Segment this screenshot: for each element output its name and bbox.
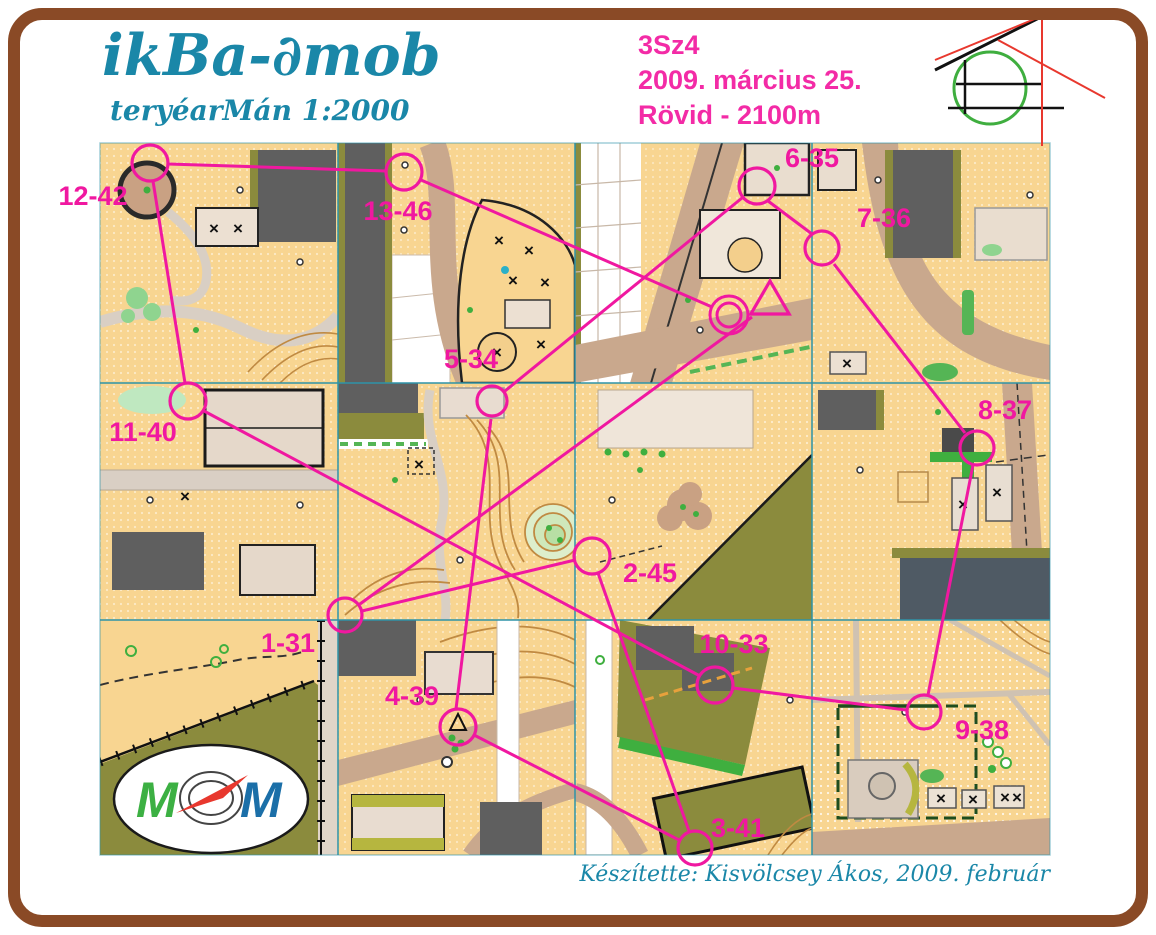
control-label-6-35: 6-35: [785, 143, 839, 173]
house-compass-emblem-icon: [935, 12, 1105, 146]
svg-text:×: ×: [992, 483, 1002, 502]
control-label-1-31: 1-31: [261, 628, 315, 658]
control-label-3-41: 3-41: [711, 813, 765, 843]
control-label-11-40: 11-40: [109, 417, 177, 447]
event-course-length: Rövid - 2100m: [638, 98, 862, 133]
control-label-7-36: 7-36: [857, 203, 911, 233]
svg-text:×: ×: [540, 273, 550, 292]
map-subtitle-scale: teryéarMán 1:2000: [110, 94, 409, 127]
control-label-2-45: 2-45: [623, 558, 677, 588]
svg-text:×: ×: [233, 219, 243, 238]
map-tile-r1c1: ××: [100, 143, 338, 383]
svg-text:×: ×: [209, 219, 219, 238]
control-label-9-38: 9-38: [955, 715, 1009, 745]
control-label-4-39: 4-39: [385, 681, 439, 711]
svg-text:×: ×: [1000, 788, 1010, 807]
event-info-block: 3Sz4 2009. március 25. Rövid - 2100m: [638, 28, 862, 133]
svg-text:×: ×: [1012, 788, 1022, 807]
svg-text:×: ×: [936, 789, 946, 808]
club-logo-letter-left: M: [136, 772, 179, 828]
club-logo-letter-right: M: [240, 772, 283, 828]
map-tile-r3c4: ×× ××: [812, 620, 1050, 855]
credit-line: Készítette: Kisvölcsey Ákos, 2009. febru…: [579, 862, 1050, 887]
control-label-5-34: 5-34: [444, 344, 498, 374]
svg-text:×: ×: [842, 354, 852, 373]
svg-text:×: ×: [524, 241, 534, 260]
svg-text:×: ×: [494, 231, 504, 250]
svg-text:×: ×: [536, 335, 546, 354]
map-tile-r2c3: [575, 383, 812, 620]
map-tile-r1c4: ×: [812, 143, 1050, 383]
orienteering-map-sheet: ×× ×× ×× ××: [0, 0, 1156, 935]
svg-text:×: ×: [180, 487, 190, 506]
map-tile-r3c3: [575, 620, 815, 859]
control-label-8-37: 8-37: [978, 395, 1032, 425]
svg-text:×: ×: [968, 790, 978, 809]
map-title: ikBa-∂mob: [102, 22, 441, 89]
control-label-10-33: 10-33: [699, 629, 768, 659]
svg-text:×: ×: [508, 271, 518, 290]
event-date: 2009. március 25.: [638, 63, 862, 98]
control-label-12-42: 12-42: [58, 181, 127, 211]
event-code: 3Sz4: [638, 28, 862, 63]
map-tile-r3c2: [338, 620, 575, 855]
svg-text:×: ×: [414, 455, 424, 474]
control-label-13-46: 13-46: [363, 196, 432, 226]
